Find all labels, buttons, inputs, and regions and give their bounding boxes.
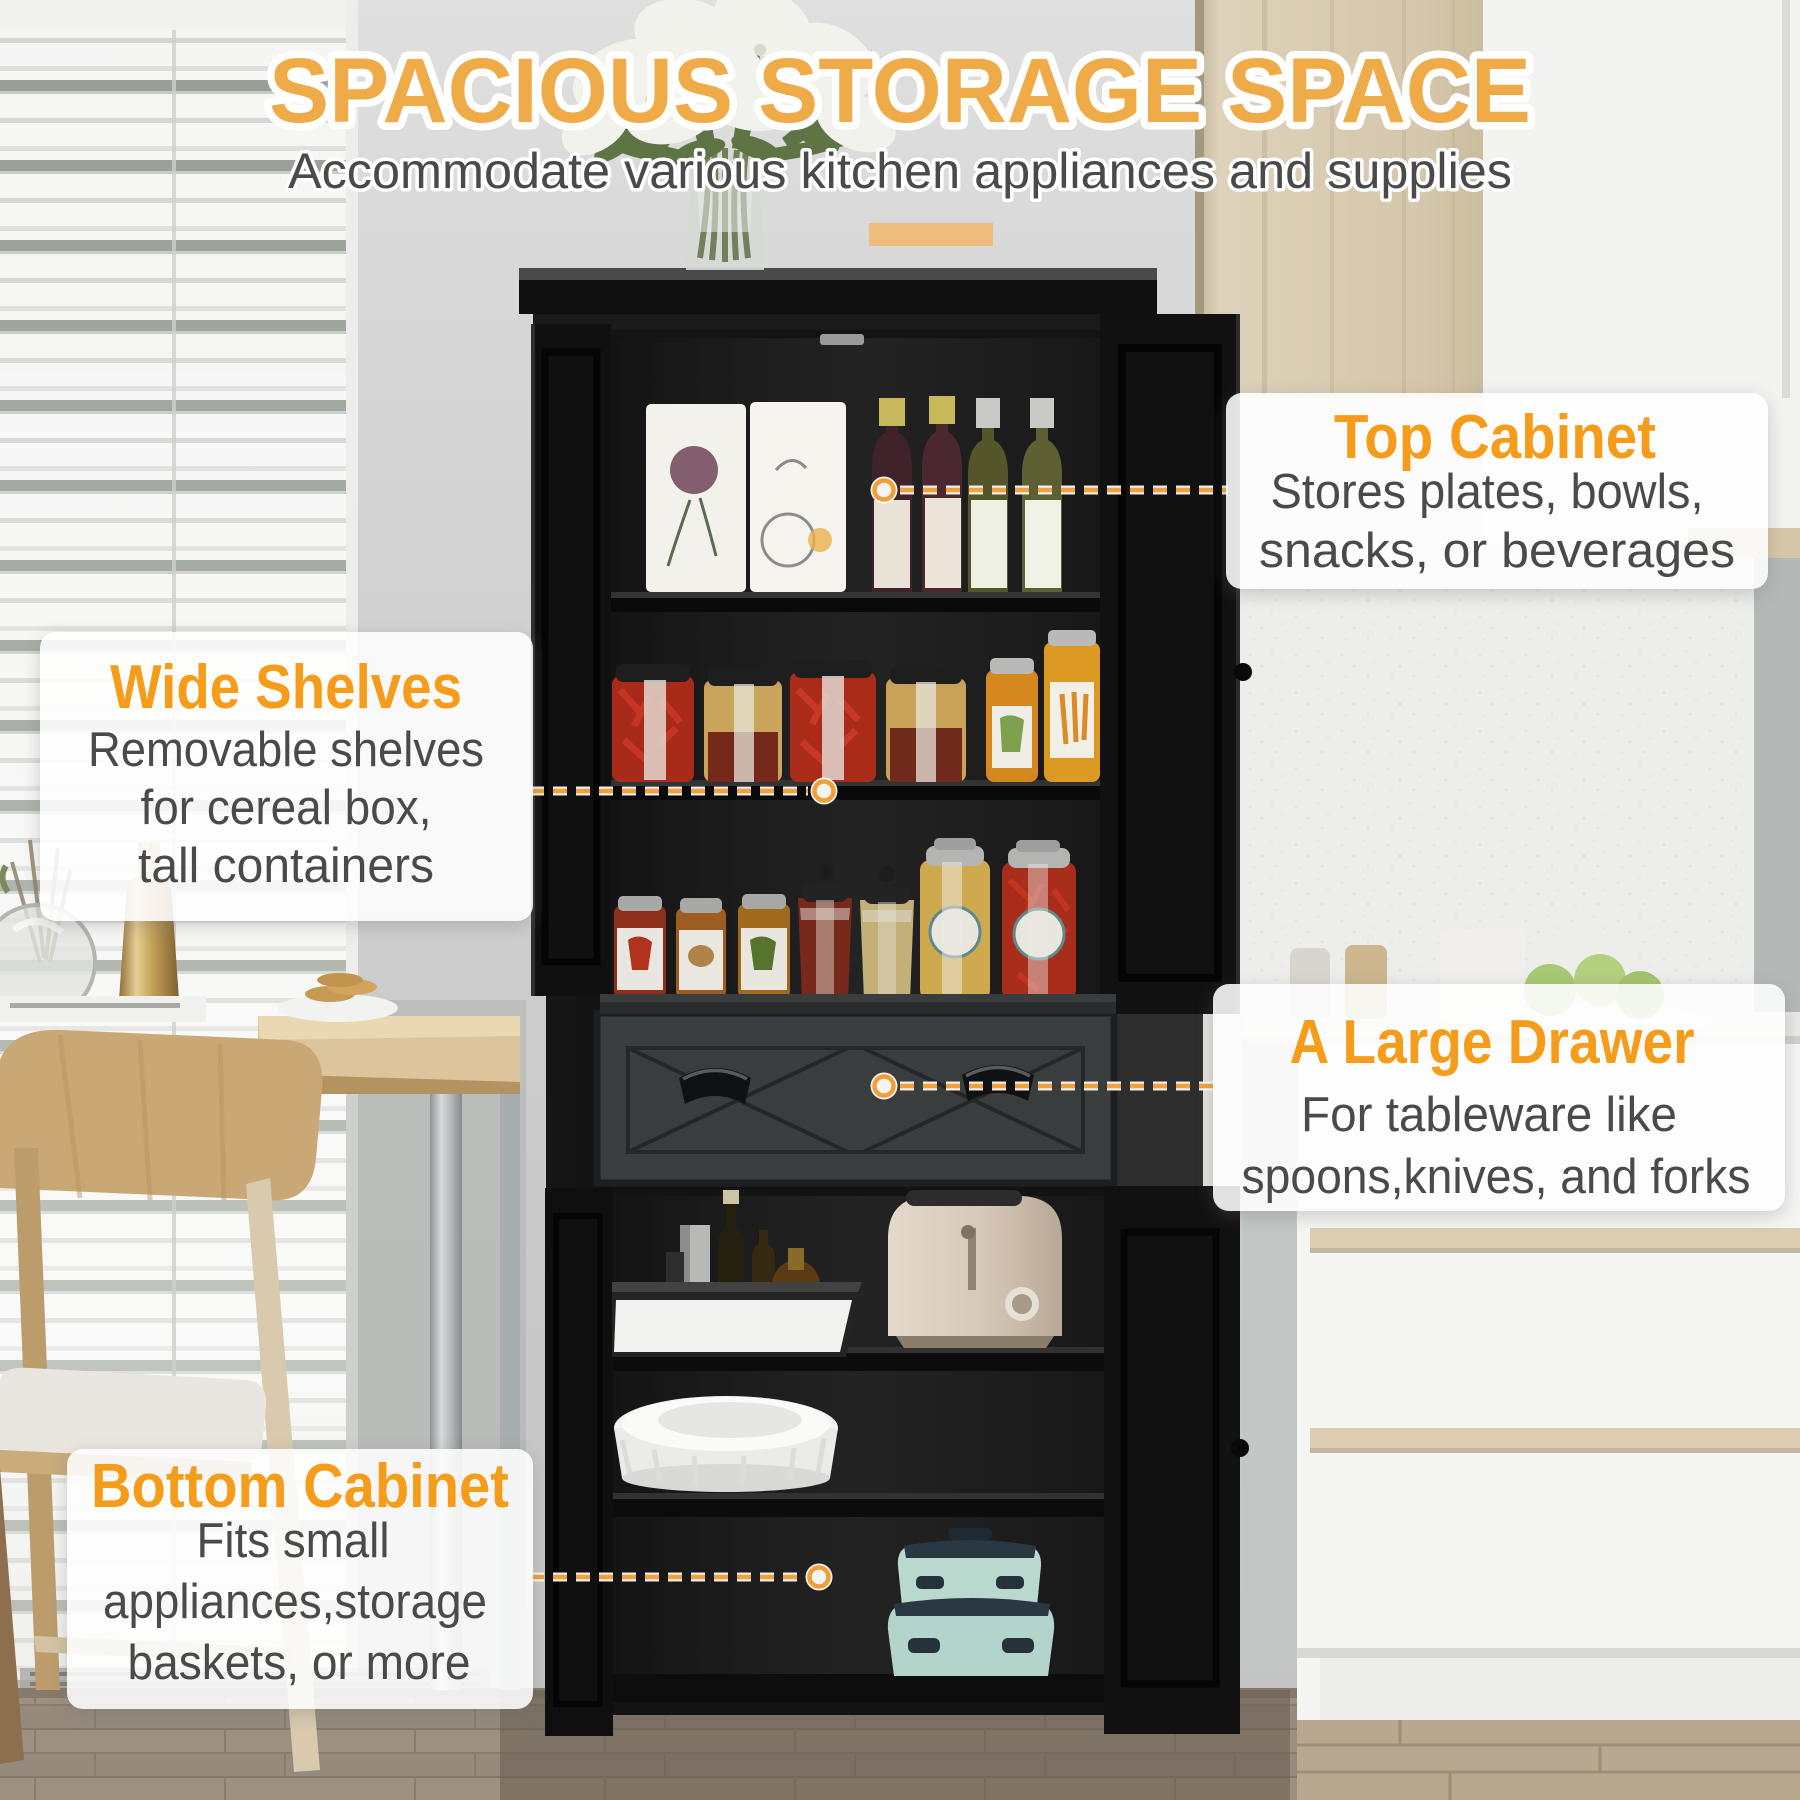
svg-text:spoons,knives, and forks: spoons,knives, and forks [1242,1150,1751,1204]
svg-text:Fits small: Fits small [197,1514,390,1568]
svg-text:snacks, or beverages: snacks, or beverages [1259,524,1735,578]
svg-text:appliances,storage: appliances,storage [103,1575,487,1629]
svg-text:Accommodate various kitchen ap: Accommodate various kitchen appliances a… [288,143,1512,199]
svg-text:baskets, or more: baskets, or more [128,1636,471,1690]
svg-text:For tableware like: For tableware like [1301,1088,1677,1142]
svg-text:Wide Shelves: Wide Shelves [110,653,462,722]
svg-text:Stores plates, bowls,: Stores plates, bowls, [1271,465,1704,519]
svg-text:Top Cabinet: Top Cabinet [1334,403,1656,472]
svg-text:Bottom Cabinet: Bottom Cabinet [91,1452,509,1521]
svg-text:A Large Drawer: A Large Drawer [1290,1008,1695,1077]
svg-text:tall containers: tall containers [138,839,434,893]
svg-text:for cereal box,: for cereal box, [141,781,432,835]
svg-text:Removable shelves: Removable shelves [88,723,484,777]
svg-text:SPACIOUS STORAGE SPACE: SPACIOUS STORAGE SPACE [269,40,1531,142]
